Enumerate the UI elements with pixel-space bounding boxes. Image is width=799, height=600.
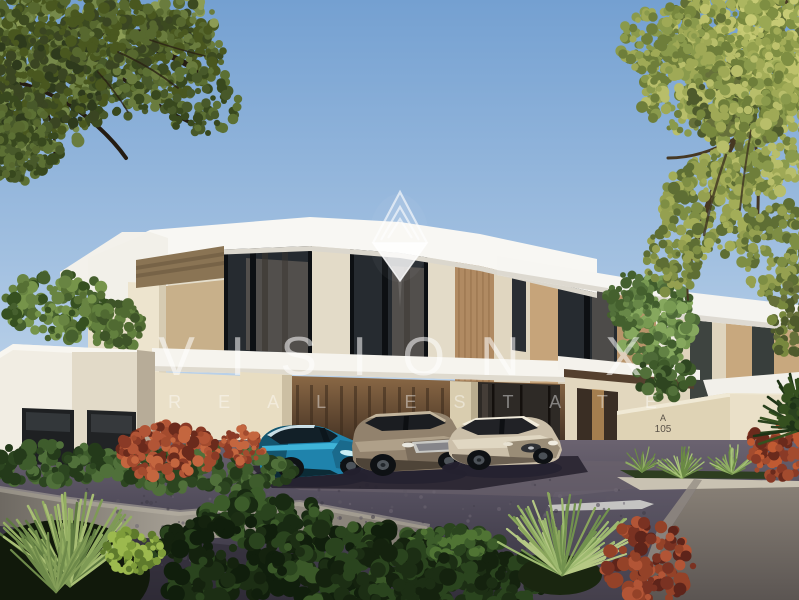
svg-text:105: 105 <box>655 424 672 435</box>
svg-text:A: A <box>660 413 666 423</box>
